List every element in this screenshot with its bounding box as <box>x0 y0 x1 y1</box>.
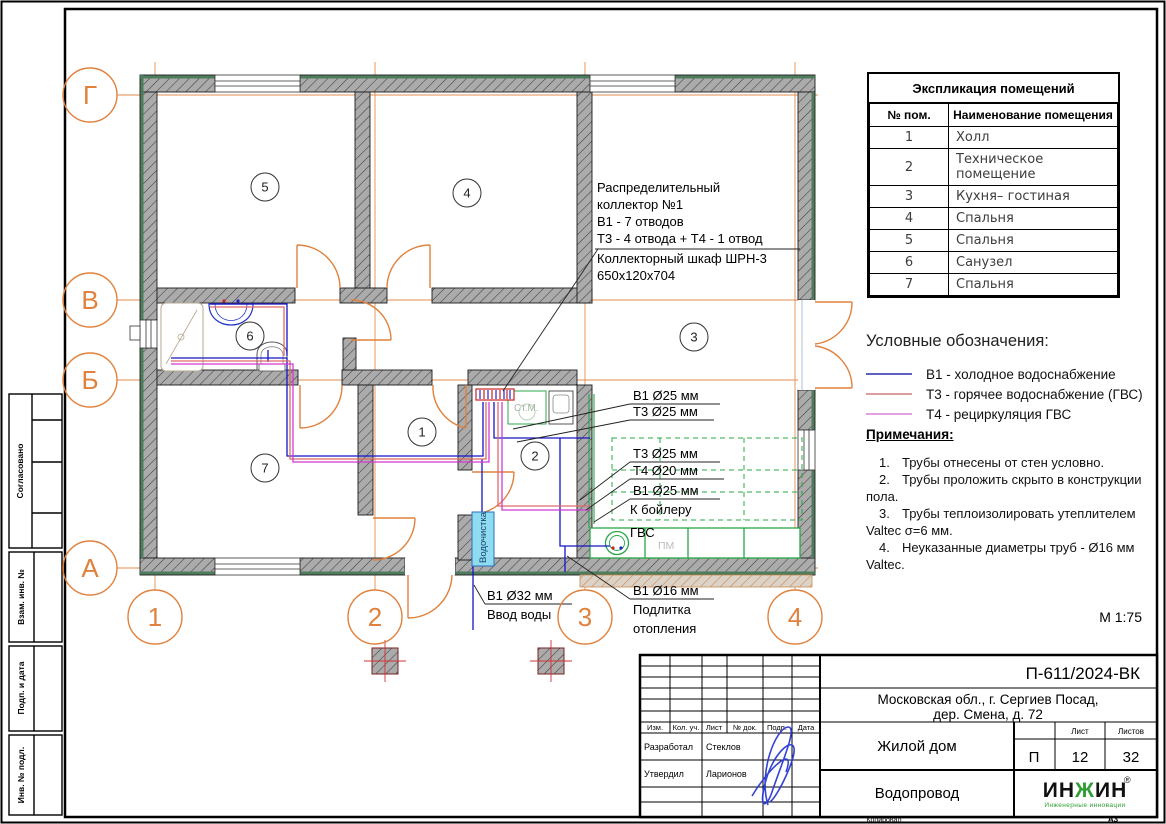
tb-object: Жилой дом <box>877 738 956 755</box>
legend-title: Условные обозначения: <box>866 332 1166 351</box>
boiler-label-t3: Т3 Ø25 мм <box>633 446 698 461</box>
room-2: 2 <box>531 449 538 464</box>
notes: Примечания: 1.Трубы отнесены от стен усл… <box>866 427 1164 573</box>
notes-title: Примечания: <box>866 427 1164 442</box>
makeup-label-3: отопления <box>633 621 696 636</box>
note-item: 4.Неуказанные диаметры труб - Ø16 мм Val… <box>866 539 1164 573</box>
stamp-inv-no: Инв. № подл. <box>16 747 26 803</box>
makeup-label-1: В1 Ø16 мм <box>633 583 699 598</box>
axis-col-2: 2 <box>368 602 382 632</box>
tb-address-2: дер. Смена, д. 72 <box>933 707 1043 722</box>
tb-approved-name: Ларионов <box>706 769 747 779</box>
axis-col-1: 1 <box>148 602 162 632</box>
tb-col-kol: Кол. уч. <box>673 723 700 732</box>
collector-note-4: Т3 - 4 отвода + Т4 - 1 отвод <box>597 231 763 246</box>
collector-note-5: Коллекторный шкаф ШРН-3 <box>597 251 767 266</box>
water-treatment-unit: Водочистка <box>472 511 494 566</box>
tb-col-data: Дата <box>798 723 815 732</box>
tb-developed-name: Стеклов <box>706 742 741 752</box>
tb-stage: П <box>1029 749 1040 766</box>
table-row: 3Кухня– гостиная <box>870 186 1118 208</box>
table-row: 2Техническое помещение <box>870 149 1118 186</box>
room-3: 3 <box>690 330 697 345</box>
tb-copied: Копировал <box>866 817 901 824</box>
legend-item-t3: Т3 - горячее водоснабжение (ГВС) <box>866 386 1166 402</box>
tb-developed-label: Разработал <box>644 742 693 752</box>
note-item: 3.Трубы теплоизолировать утеплителем Val… <box>866 505 1164 539</box>
inlet-label-1: В1 Ø32 мм <box>487 588 553 603</box>
collector-note-1: Распределительный <box>597 180 720 195</box>
boiler-label-b1: В1 Ø25 мм <box>633 483 699 498</box>
pipe-label-b1-25: В1 Ø25 мм <box>633 388 699 403</box>
svg-text:ИНЖИН: ИНЖИН <box>1043 779 1128 802</box>
legend: Условные обозначения: В1 - холодное водо… <box>866 332 1166 426</box>
legend-line-t4 <box>866 411 914 417</box>
inlet-label-2: Ввод воды <box>487 607 551 622</box>
tb-format: А3 <box>1108 815 1119 824</box>
legend-label-t4: Т4 - рециркуляция ГВС <box>926 407 1071 422</box>
note-item: 1.Трубы отнесены от стен условно. <box>866 454 1164 471</box>
scale-label: М 1:75 <box>1099 609 1142 625</box>
tb-doc-number: П-611/2024-ВК <box>1026 664 1141 683</box>
table-row: 1Холл <box>870 127 1118 149</box>
legend-line-b1 <box>866 371 914 377</box>
axis-row-g: Г <box>83 80 97 110</box>
legend-label-b1: В1 - холодное водоснабжение <box>926 367 1116 382</box>
tb-sheet-title: Водопровод <box>875 785 960 802</box>
dishwasher-label: ПМ <box>658 540 674 552</box>
boiler-label-text2: ГВС <box>630 525 655 540</box>
margin-stamp-labels: Согласовано Взам. инв. № Подп. и дата Ин… <box>15 444 26 804</box>
collector-note-3: В1 - 7 отводов <box>597 214 684 229</box>
company-logo: ИНЖИН ® Инженерные инновации <box>1043 775 1131 809</box>
logo-part-1: ИН <box>1043 779 1075 802</box>
tb-sheet-label: Лист <box>1071 727 1089 736</box>
room-5: 5 <box>261 180 268 195</box>
room-4: 4 <box>463 186 470 201</box>
room-7: 7 <box>261 461 268 476</box>
schedule-col-name: Наименование помещения <box>949 104 1118 127</box>
legend-label-t3: Т3 - горячее водоснабжение (ГВС) <box>926 387 1143 402</box>
logo-part-2: ИН <box>1095 779 1127 802</box>
pipe-label-t3-25: Т3 Ø25 мм <box>633 404 698 419</box>
room-6: 6 <box>246 329 253 344</box>
legend-item-t4: Т4 - рециркуляция ГВС <box>866 406 1166 422</box>
title-block: Изм. Кол. уч. Лист № док. Подп. Дата Раз… <box>640 655 1157 824</box>
stamp-sign-date: Подп. и дата <box>16 661 26 714</box>
stamp-replace-inv: Взам. инв. № <box>16 569 26 625</box>
collector-note-2: коллектор №1 <box>597 197 683 212</box>
logo-zh: Ж <box>1074 779 1095 802</box>
washing-machine-label: Ст.М. <box>514 403 539 414</box>
stamp-agreed: Согласовано <box>15 444 25 499</box>
collector <box>476 389 514 400</box>
logo-reg-mark: ® <box>1124 775 1131 785</box>
room-schedule-table: № пом. Наименование помещения 1Холл 2Тех… <box>869 103 1118 296</box>
room-schedule-title: Экспликация помещений <box>869 74 1118 103</box>
legend-line-t3 <box>866 391 914 397</box>
table-row: 7Спальня <box>870 274 1118 296</box>
axis-col-3: 3 <box>578 602 592 632</box>
drawing-sheet: Согласовано Взам. инв. № Подп. и дата Ин… <box>0 0 1166 824</box>
boiler-label-t4: Т4 Ø20 мм <box>633 463 698 478</box>
axis-row-v: В <box>81 285 98 315</box>
water-treatment-label: Водочистка <box>478 511 489 563</box>
axis-row-b: Б <box>81 365 98 395</box>
axis-row-a: А <box>81 553 99 583</box>
axis-col-4: 4 <box>788 602 802 632</box>
logo-subtitle: Инженерные инновации <box>1044 802 1125 809</box>
table-row: 5Спальня <box>870 230 1118 252</box>
schedule-col-number: № пом. <box>870 104 949 127</box>
table-row: 4Спальня <box>870 208 1118 230</box>
tb-address-1: Московская обл., г. Сергиев Посад, <box>877 692 1098 707</box>
makeup-label-2: Подлитка <box>633 602 692 617</box>
room-1: 1 <box>418 425 425 440</box>
legend-item-b1: В1 - холодное водоснабжение <box>866 366 1166 382</box>
tb-sheets: 32 <box>1123 749 1140 766</box>
tb-col-doc: № док. <box>733 723 757 732</box>
tb-col-podp: Подп. <box>767 723 787 732</box>
tb-sheets-label: Листов <box>1118 727 1144 736</box>
tb-sheet: 12 <box>1072 749 1089 766</box>
room-schedule: Экспликация помещений № пом. Наименовани… <box>867 72 1120 298</box>
boiler-label-text1: К бойлеру <box>630 502 692 517</box>
tb-approved-label: Утвердил <box>644 769 684 779</box>
table-row: 6Санузел <box>870 252 1118 274</box>
tb-col-list: Лист <box>706 723 723 732</box>
note-item: 2.Трубы проложить скрыто в конструкции п… <box>866 471 1164 505</box>
collector-note-6: 650х120х704 <box>597 268 675 283</box>
tb-col-izm: Изм. <box>647 723 663 732</box>
